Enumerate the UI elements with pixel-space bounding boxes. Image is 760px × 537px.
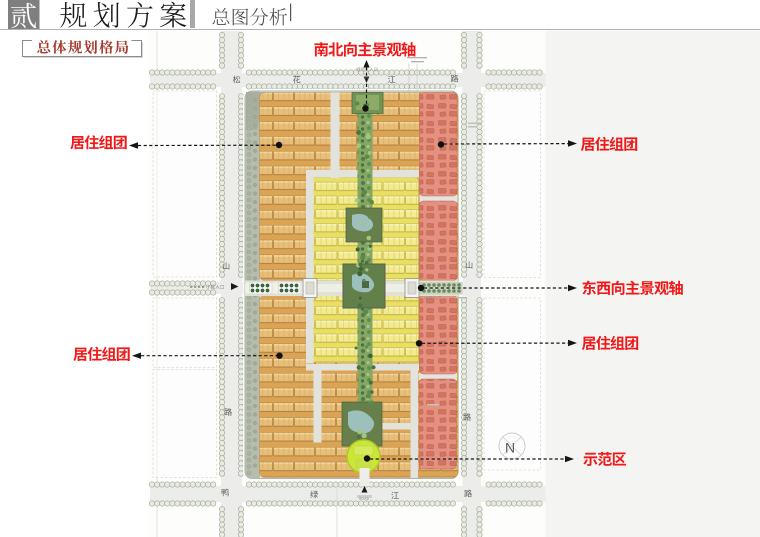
svg-text:N: N <box>505 440 515 456</box>
